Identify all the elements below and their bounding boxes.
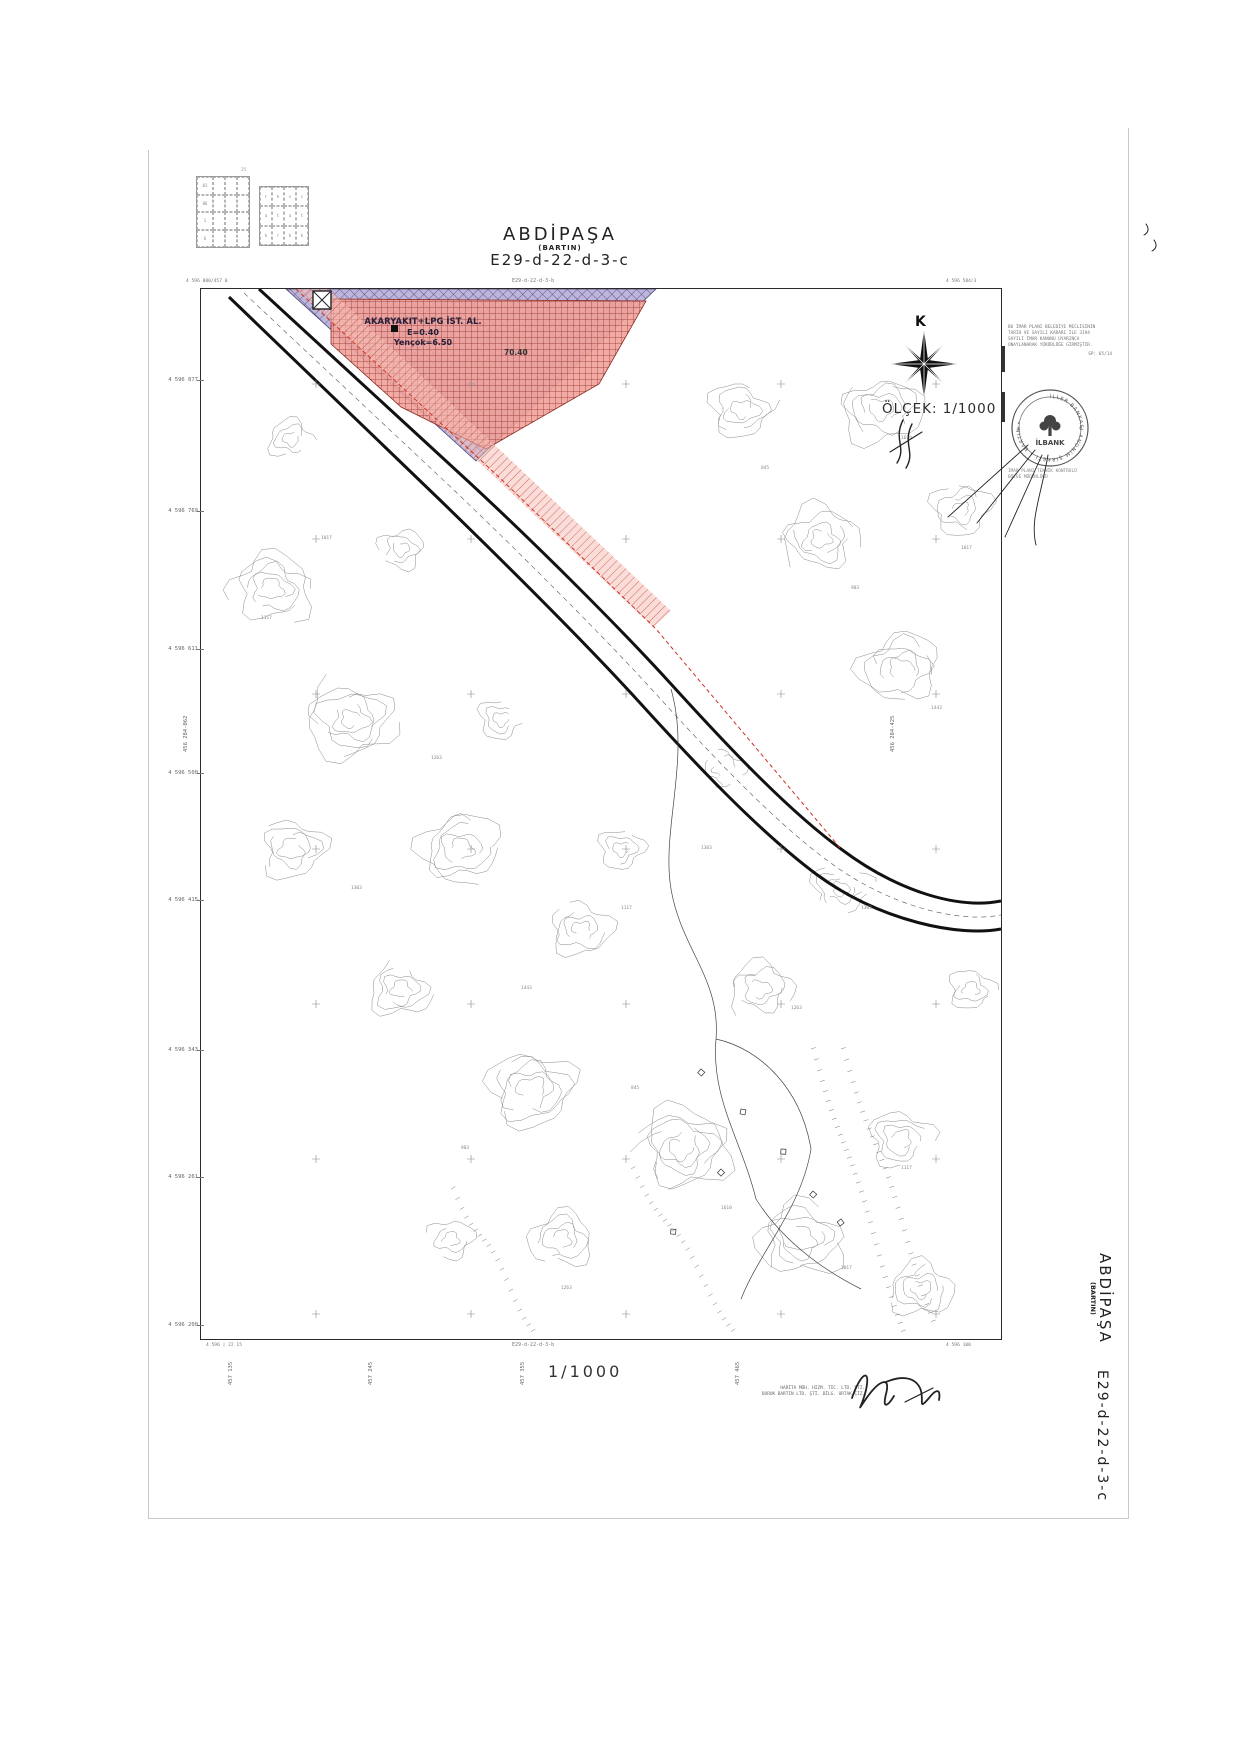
svg-text:1117: 1117 (901, 1165, 912, 1171)
coordinate-tick-label: 4 596 200 (156, 1322, 198, 1328)
zone-name: AKARYAKIT+LPG İST. AL. (348, 317, 498, 328)
signature (905, 1388, 933, 1402)
adjacent-sheet-bottom: E29-d-22-d-3-b (512, 1342, 554, 1348)
paper-edge-left (148, 150, 149, 1518)
svg-text:İLBANK: İLBANK (1035, 438, 1065, 447)
svg-text:845: 845 (631, 1085, 639, 1091)
side-coord-left: 456 284-062 (183, 716, 189, 752)
svg-text:845: 845 (761, 465, 769, 471)
paper-edge-bottom (148, 1518, 1129, 1519)
approval-note: BU İMAR PLANI BELEDİYE MECLİSİNİNTARİH V… (1008, 325, 1112, 358)
svg-text:1263: 1263 (791, 1005, 802, 1011)
side-sheet-number: E29-d-22-d-3-c (1094, 1370, 1110, 1502)
svg-text:1017: 1017 (961, 545, 972, 551)
corner-coord-bottom-left: 4 596 | 22 15 (206, 1343, 242, 1348)
stamp-note: İMAR PLANI TEKNİK KONTROLÜBÖLGE MÜDÜRLÜĞ… (1008, 469, 1098, 481)
small-buildings (671, 1069, 845, 1234)
svg-text:1443: 1443 (521, 985, 532, 991)
side-title: ABDİPAŞA (1096, 1253, 1112, 1344)
coordinate-tick-label: 4 596 877 (156, 377, 198, 383)
pen-mark (1144, 224, 1148, 235)
corner-coord-bottom-right: 4 596 100 (946, 1343, 971, 1348)
coordinate-tick-label: 4 596 415 (156, 897, 198, 903)
coordinate-tick-label: 457 245 (368, 1362, 374, 1385)
corner-coord-top-right: 4 596 584/3 (946, 279, 976, 284)
svg-text:1303: 1303 (861, 905, 872, 911)
approval-ref: SP: 65/14 (1008, 352, 1112, 358)
scanned-map-sheet: { "header": { "title": "ABDİPAŞA", "regi… (0, 0, 1241, 1755)
corner-coord-top-left: 4 596 880/457 0 (186, 279, 228, 284)
stamp-emblem (1040, 415, 1061, 436)
svg-text:1117: 1117 (621, 905, 632, 911)
coordinate-tick-label: 457 465 (735, 1362, 741, 1385)
signature (886, 1378, 939, 1404)
pafta-index-grid-a: 010616 (196, 176, 250, 248)
svg-text:1117: 1117 (261, 615, 272, 621)
scan-artifact (1002, 346, 1005, 372)
credits: HARİTA MÜH. HİZM. TİC. LTD. ŞTİ. DORUK B… (700, 1386, 865, 1398)
svg-text:903: 903 (851, 585, 859, 591)
coordinate-tick-label: 457 355 (520, 1362, 526, 1385)
title-block: ABDİPAŞA (BARTIN) E29-d-22-d-3-c (400, 226, 720, 269)
paper-fold-right (1128, 128, 1129, 1518)
contour-lines (223, 381, 999, 1331)
official-stamp: İLLER BANKASI ANONİM ŞİRKETİ • BARTIN • … (1003, 383, 1097, 477)
svg-text:1303: 1303 (701, 845, 712, 851)
svg-text:*: * (1017, 426, 1020, 433)
map-frame: 1017111712631303144390384516101017111712… (200, 288, 1002, 1340)
side-title-block: ABDİPAŞA (BARTIN) E29-d-22-d-3-c (1089, 1253, 1112, 1502)
coordinate-tick-label: 457 135 (228, 1362, 234, 1385)
svg-text:903: 903 (461, 1145, 469, 1151)
zone-emsal: E=0.40 (348, 328, 498, 338)
pafta-index-grid-b: rkscatatkrbk (259, 186, 309, 246)
footer-scale: 1/1000 (548, 1362, 622, 1381)
map-drawing: 1017111712631303144390384516101017111712… (201, 289, 1001, 1339)
zone-annotation: AKARYAKIT+LPG İST. AL. E=0.40 Yençok=6.5… (348, 317, 498, 348)
zone-height: Yençok=6.50 (348, 338, 498, 348)
svg-text:1303: 1303 (351, 885, 362, 891)
dimension-label: 70.40 (504, 348, 528, 357)
sheet-number: E29-d-22-d-3-c (400, 253, 720, 269)
svg-text:*: * (1079, 426, 1082, 433)
svg-text:1263: 1263 (561, 1285, 572, 1291)
side-coord-right: 456 284-425 (890, 716, 896, 752)
svg-text:1610: 1610 (901, 435, 912, 441)
svg-text:1443: 1443 (931, 705, 942, 711)
svg-text:1263: 1263 (431, 755, 442, 761)
coordinate-tick-label: 4 596 343 (156, 1047, 198, 1053)
scale-label: ÖLÇEK: 1/1000 (882, 401, 996, 417)
index-note: 25 (241, 168, 246, 173)
coordinate-tick-label: 4 596 611 (156, 646, 198, 652)
pafta-index-grids: 25 010616 rkscatatkrbk (193, 168, 313, 252)
svg-text:1017: 1017 (321, 535, 332, 541)
coordinate-tick-label: 4 596 261 (156, 1174, 198, 1180)
compass-rose-icon (888, 328, 960, 400)
pen-mark (1152, 240, 1156, 251)
coordinate-tick-label: 4 596 500 (156, 770, 198, 776)
coordinate-tick-label: 4 596 769 (156, 508, 198, 514)
adjacent-sheet-top: E29-d-22-d-3-b (512, 278, 554, 284)
credit-line-2: DORUK BARTIN LTD. ŞTİ. BİLG. ORTAK ÇİZ. (700, 1392, 865, 1398)
svg-text:1610: 1610 (721, 1205, 732, 1211)
svg-text:1017: 1017 (841, 1265, 852, 1271)
page-title: ABDİPAŞA (400, 226, 720, 245)
